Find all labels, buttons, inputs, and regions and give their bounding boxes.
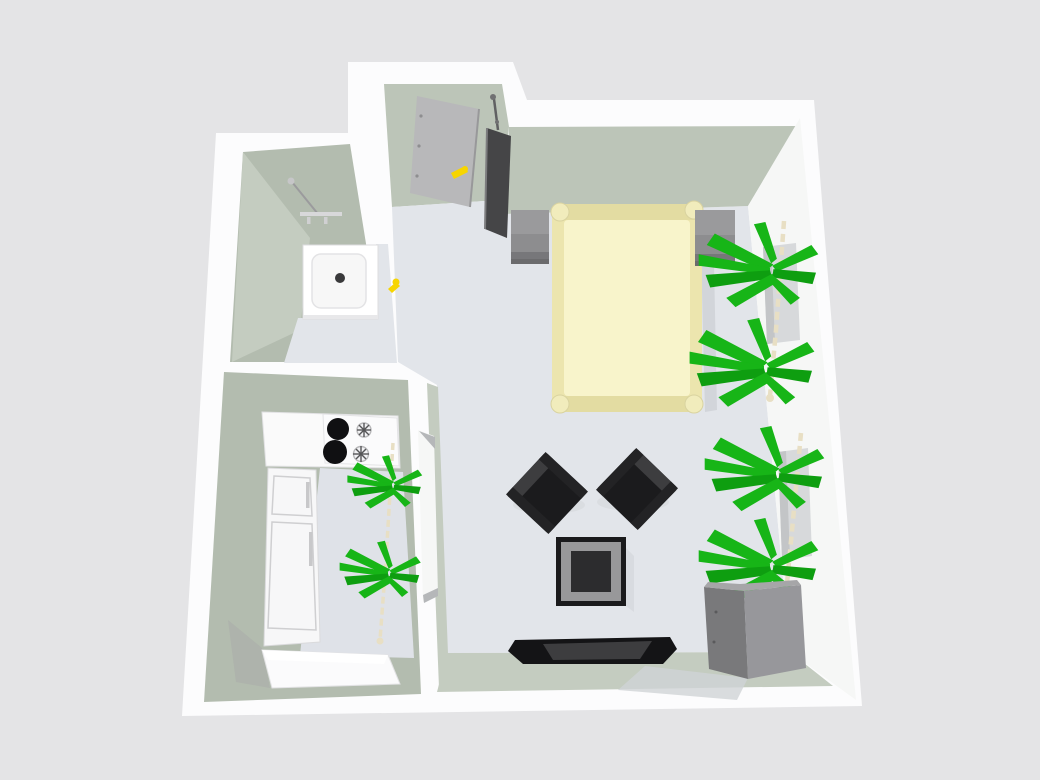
base-cabinet[interactable] bbox=[262, 650, 400, 688]
coffee-table[interactable] bbox=[556, 537, 626, 606]
dresser[interactable] bbox=[704, 580, 806, 679]
entry-door[interactable] bbox=[410, 96, 479, 207]
nightstand-left[interactable] bbox=[511, 210, 549, 264]
media-sideboard[interactable] bbox=[508, 637, 677, 664]
bed[interactable] bbox=[551, 201, 703, 413]
shower-tray[interactable] bbox=[303, 245, 378, 319]
floorplan-canvas[interactable] bbox=[0, 0, 1040, 780]
coffee-table-shadow bbox=[626, 548, 634, 612]
fridge[interactable] bbox=[264, 468, 320, 646]
